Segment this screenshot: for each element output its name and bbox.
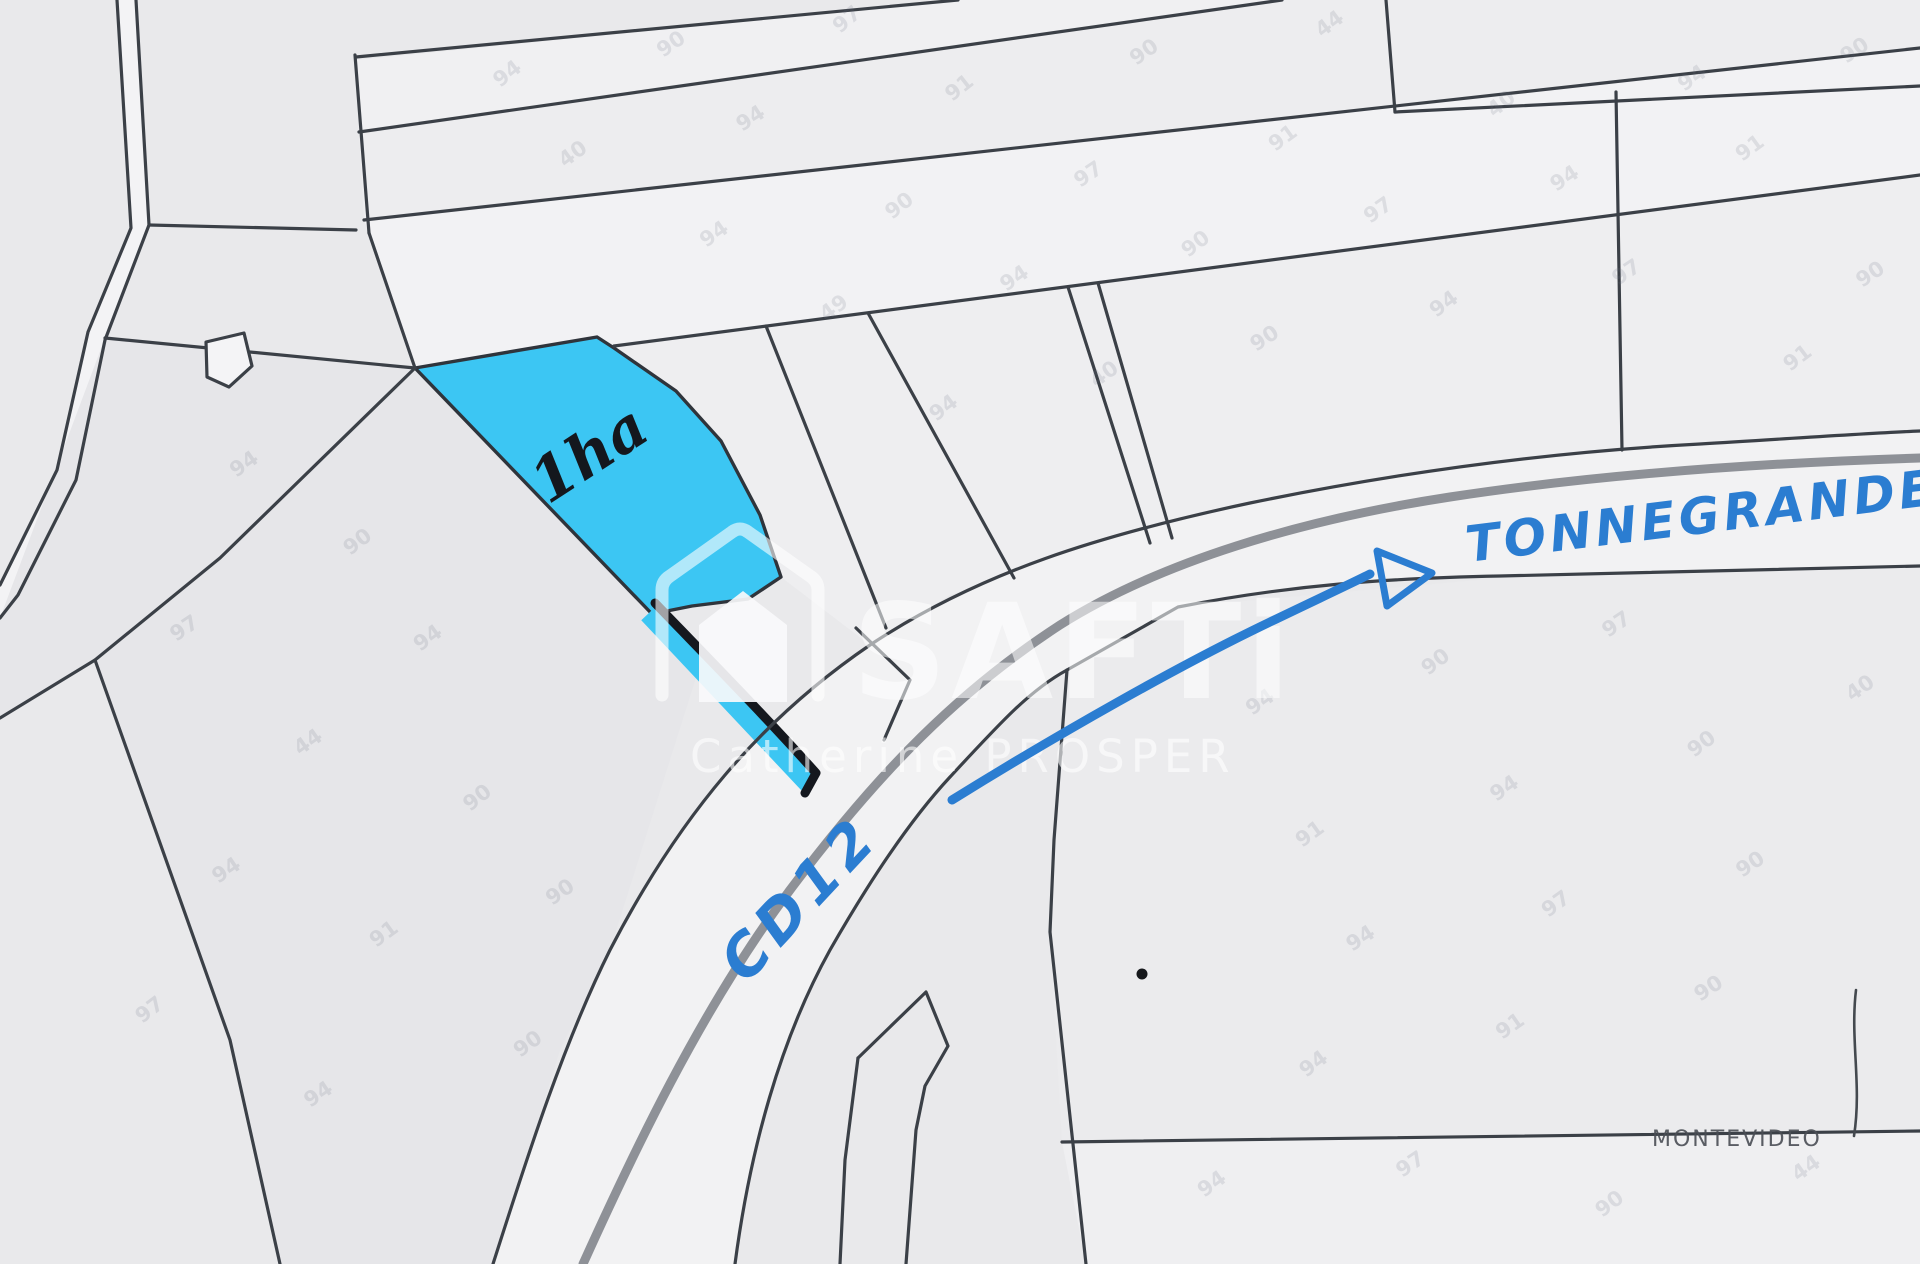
watermark-brand-text: SAFTi xyxy=(852,576,1295,730)
cadastral-map-screenshot: 9490974094919044949097914094904994909794… xyxy=(0,0,1920,1264)
map-dot xyxy=(1137,969,1148,980)
cadastral-map-svg: 9490974094919044949097914094904994909794… xyxy=(0,0,1920,1264)
locality-label: MONTEVIDEO xyxy=(1652,1127,1822,1152)
watermark-agent-text: Catherine PROSPER xyxy=(690,730,1236,783)
